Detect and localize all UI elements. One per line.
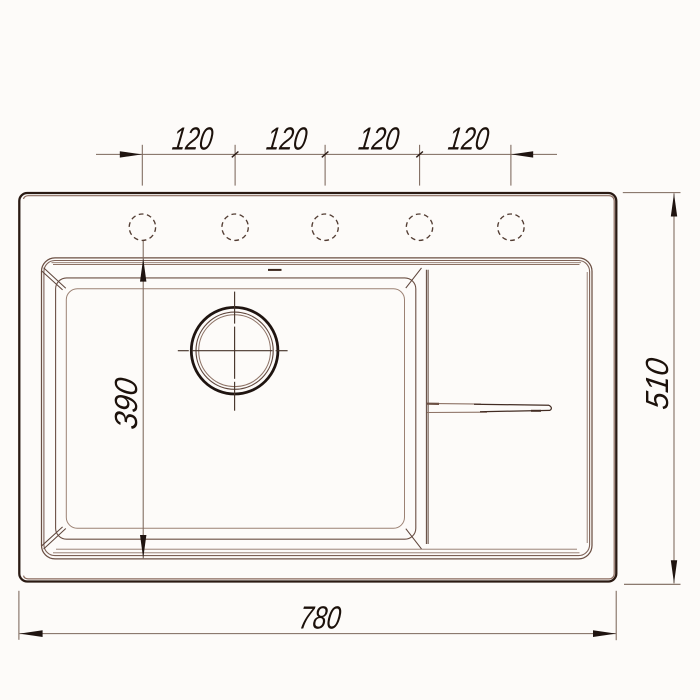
svg-text:120: 120: [264, 121, 309, 157]
svg-text:390: 390: [108, 375, 144, 431]
svg-text:120: 120: [356, 121, 401, 157]
svg-text:120: 120: [170, 121, 215, 157]
svg-text:780: 780: [297, 601, 343, 637]
svg-text:510: 510: [639, 355, 675, 411]
svg-text:120: 120: [446, 121, 491, 157]
